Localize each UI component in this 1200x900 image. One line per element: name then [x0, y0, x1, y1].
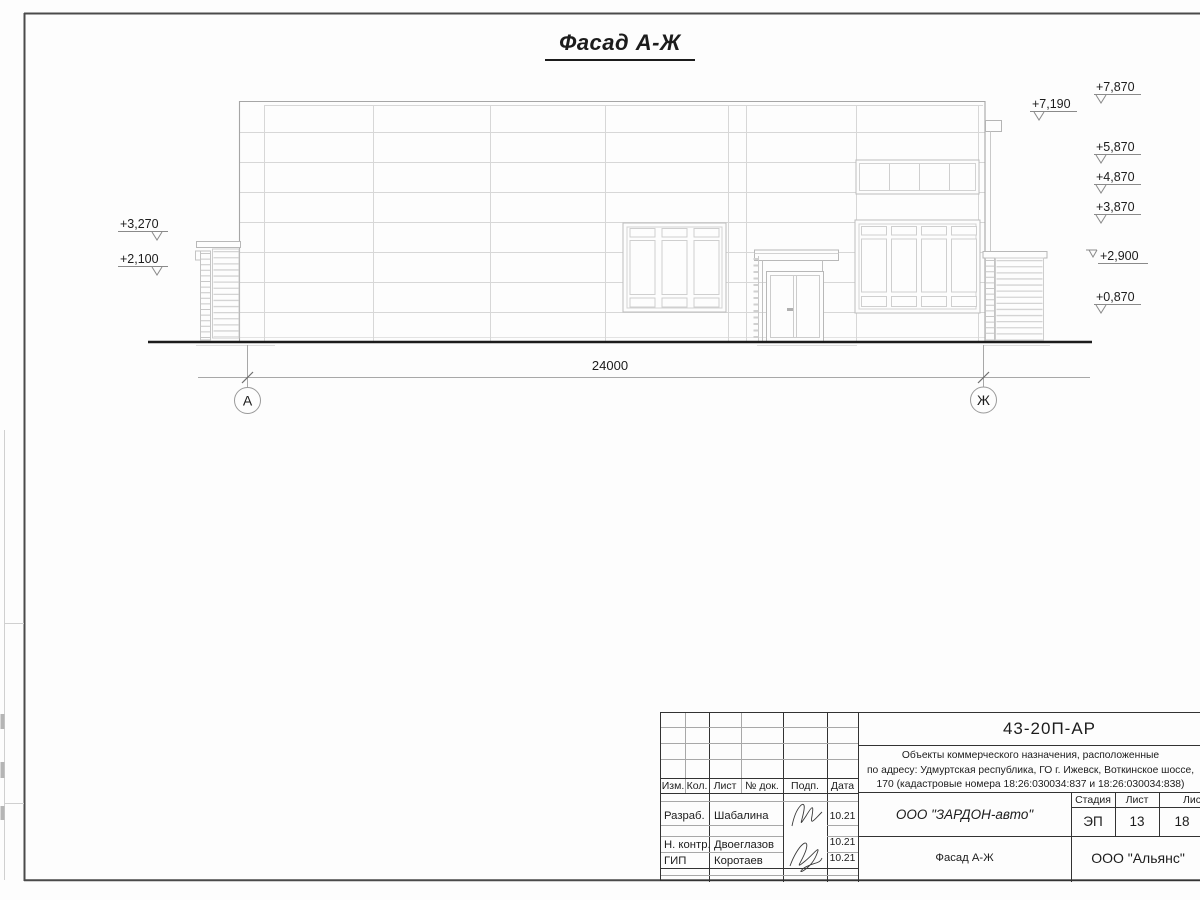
row-role: Разраб.: [661, 807, 712, 825]
sheets-total: 18: [1159, 809, 1200, 834]
company-name: ООО "ЗАРДОН-авто": [858, 799, 1071, 829]
signature-squiggle: [792, 804, 822, 826]
tb-line: [858, 745, 1200, 746]
description-line: по адресу: Удмуртская республика, ГО г. …: [862, 764, 1199, 779]
elevation-label: +5,870: [1096, 140, 1135, 154]
row-date: 10.21: [827, 851, 858, 866]
axis-label-zh: Ж: [977, 392, 990, 408]
tb-line: [1071, 807, 1200, 808]
tb-line: [858, 836, 1200, 837]
tb-line: [661, 793, 858, 794]
signature-squiggle: [790, 843, 822, 872]
dimension-line: 24000: [198, 345, 1090, 412]
entrance-door: [756, 256, 857, 346]
sheets-label: Листов: [1159, 793, 1200, 807]
roof-scupper: [986, 121, 1002, 253]
elevation-label: +4,870: [1096, 170, 1135, 184]
left-fence: [196, 242, 276, 346]
elevation-label: +2,900: [1100, 249, 1139, 263]
tb-line: [827, 825, 858, 826]
strip-window: [856, 160, 979, 194]
description-line: 170 (кадастровые номера 18:26:030034:837…: [862, 778, 1199, 793]
window-group-middle: [623, 223, 726, 312]
tb-line: [661, 727, 858, 728]
stage-label: Стадия: [1071, 793, 1115, 807]
elevation-marks-left: +3,270 +2,100: [118, 217, 168, 275]
elevation-label: +3,270: [120, 217, 159, 231]
drawing-sheet: { "sheet": { "title": "Фасад А-Ж" }, "dr…: [0, 0, 1200, 900]
axis-label-a: А: [243, 393, 253, 409]
row-name: Шабалина: [711, 807, 786, 825]
left-margin-stamp: [1, 430, 25, 880]
col-header-data: Дата: [827, 778, 858, 793]
tb-line: [661, 759, 858, 760]
elevation-marks-right: +7,870 +7,190 +5,870 +4,870 +3,870 +2,90…: [1030, 80, 1148, 313]
sheet-title-small: Фасад А-Ж: [858, 844, 1071, 872]
stage-value: ЭП: [1071, 809, 1115, 834]
project-description: Объекты коммерческого назначения, распол…: [862, 749, 1199, 793]
org-name: ООО "Альянс": [1071, 844, 1200, 872]
row-name: Двоеглазов: [711, 837, 786, 852]
col-header-doc: № док.: [741, 778, 783, 793]
elevation-label: +7,870: [1096, 80, 1135, 94]
row-name: Коротаев: [711, 853, 786, 868]
col-header-podp: Подп.: [783, 778, 827, 793]
elevation-label: +0,870: [1096, 290, 1135, 304]
doc-number: 43-20П-АР: [858, 715, 1200, 743]
row-role: ГИП: [661, 853, 712, 868]
description-line: Объекты коммерческого назначения, распол…: [862, 749, 1199, 764]
elevation-label: +7,190: [1032, 97, 1071, 111]
tb-line: [661, 875, 858, 876]
title-block: Изм. Кол. Лист № док. Подп. Дата Разраб.…: [660, 712, 1200, 881]
row-date: 10.21: [827, 835, 858, 850]
sheet-number: 13: [1115, 809, 1159, 834]
dimension-label: 24000: [592, 358, 628, 373]
elevation-label: +2,100: [120, 252, 159, 266]
window-group-right: [855, 220, 980, 313]
col-header-list: Лист: [709, 778, 741, 793]
sheet-label: Лист: [1115, 793, 1159, 807]
row-date: 10.21: [827, 807, 858, 825]
col-header-izm: Изм.: [661, 778, 685, 793]
tb-line: [661, 801, 858, 802]
grid-bubble-zh: Ж: [971, 387, 997, 413]
tb-line: [661, 868, 858, 869]
entrance-canopy: [755, 250, 839, 261]
grid-bubble-a: А: [235, 388, 261, 414]
col-header-kol: Кол.: [685, 778, 709, 793]
right-fence: [983, 252, 1050, 346]
row-role: Н. контр.: [661, 837, 712, 852]
elevation-label: +3,870: [1096, 200, 1135, 214]
signatures: [784, 796, 828, 876]
tb-line: [661, 825, 783, 826]
tb-line: [661, 743, 858, 744]
